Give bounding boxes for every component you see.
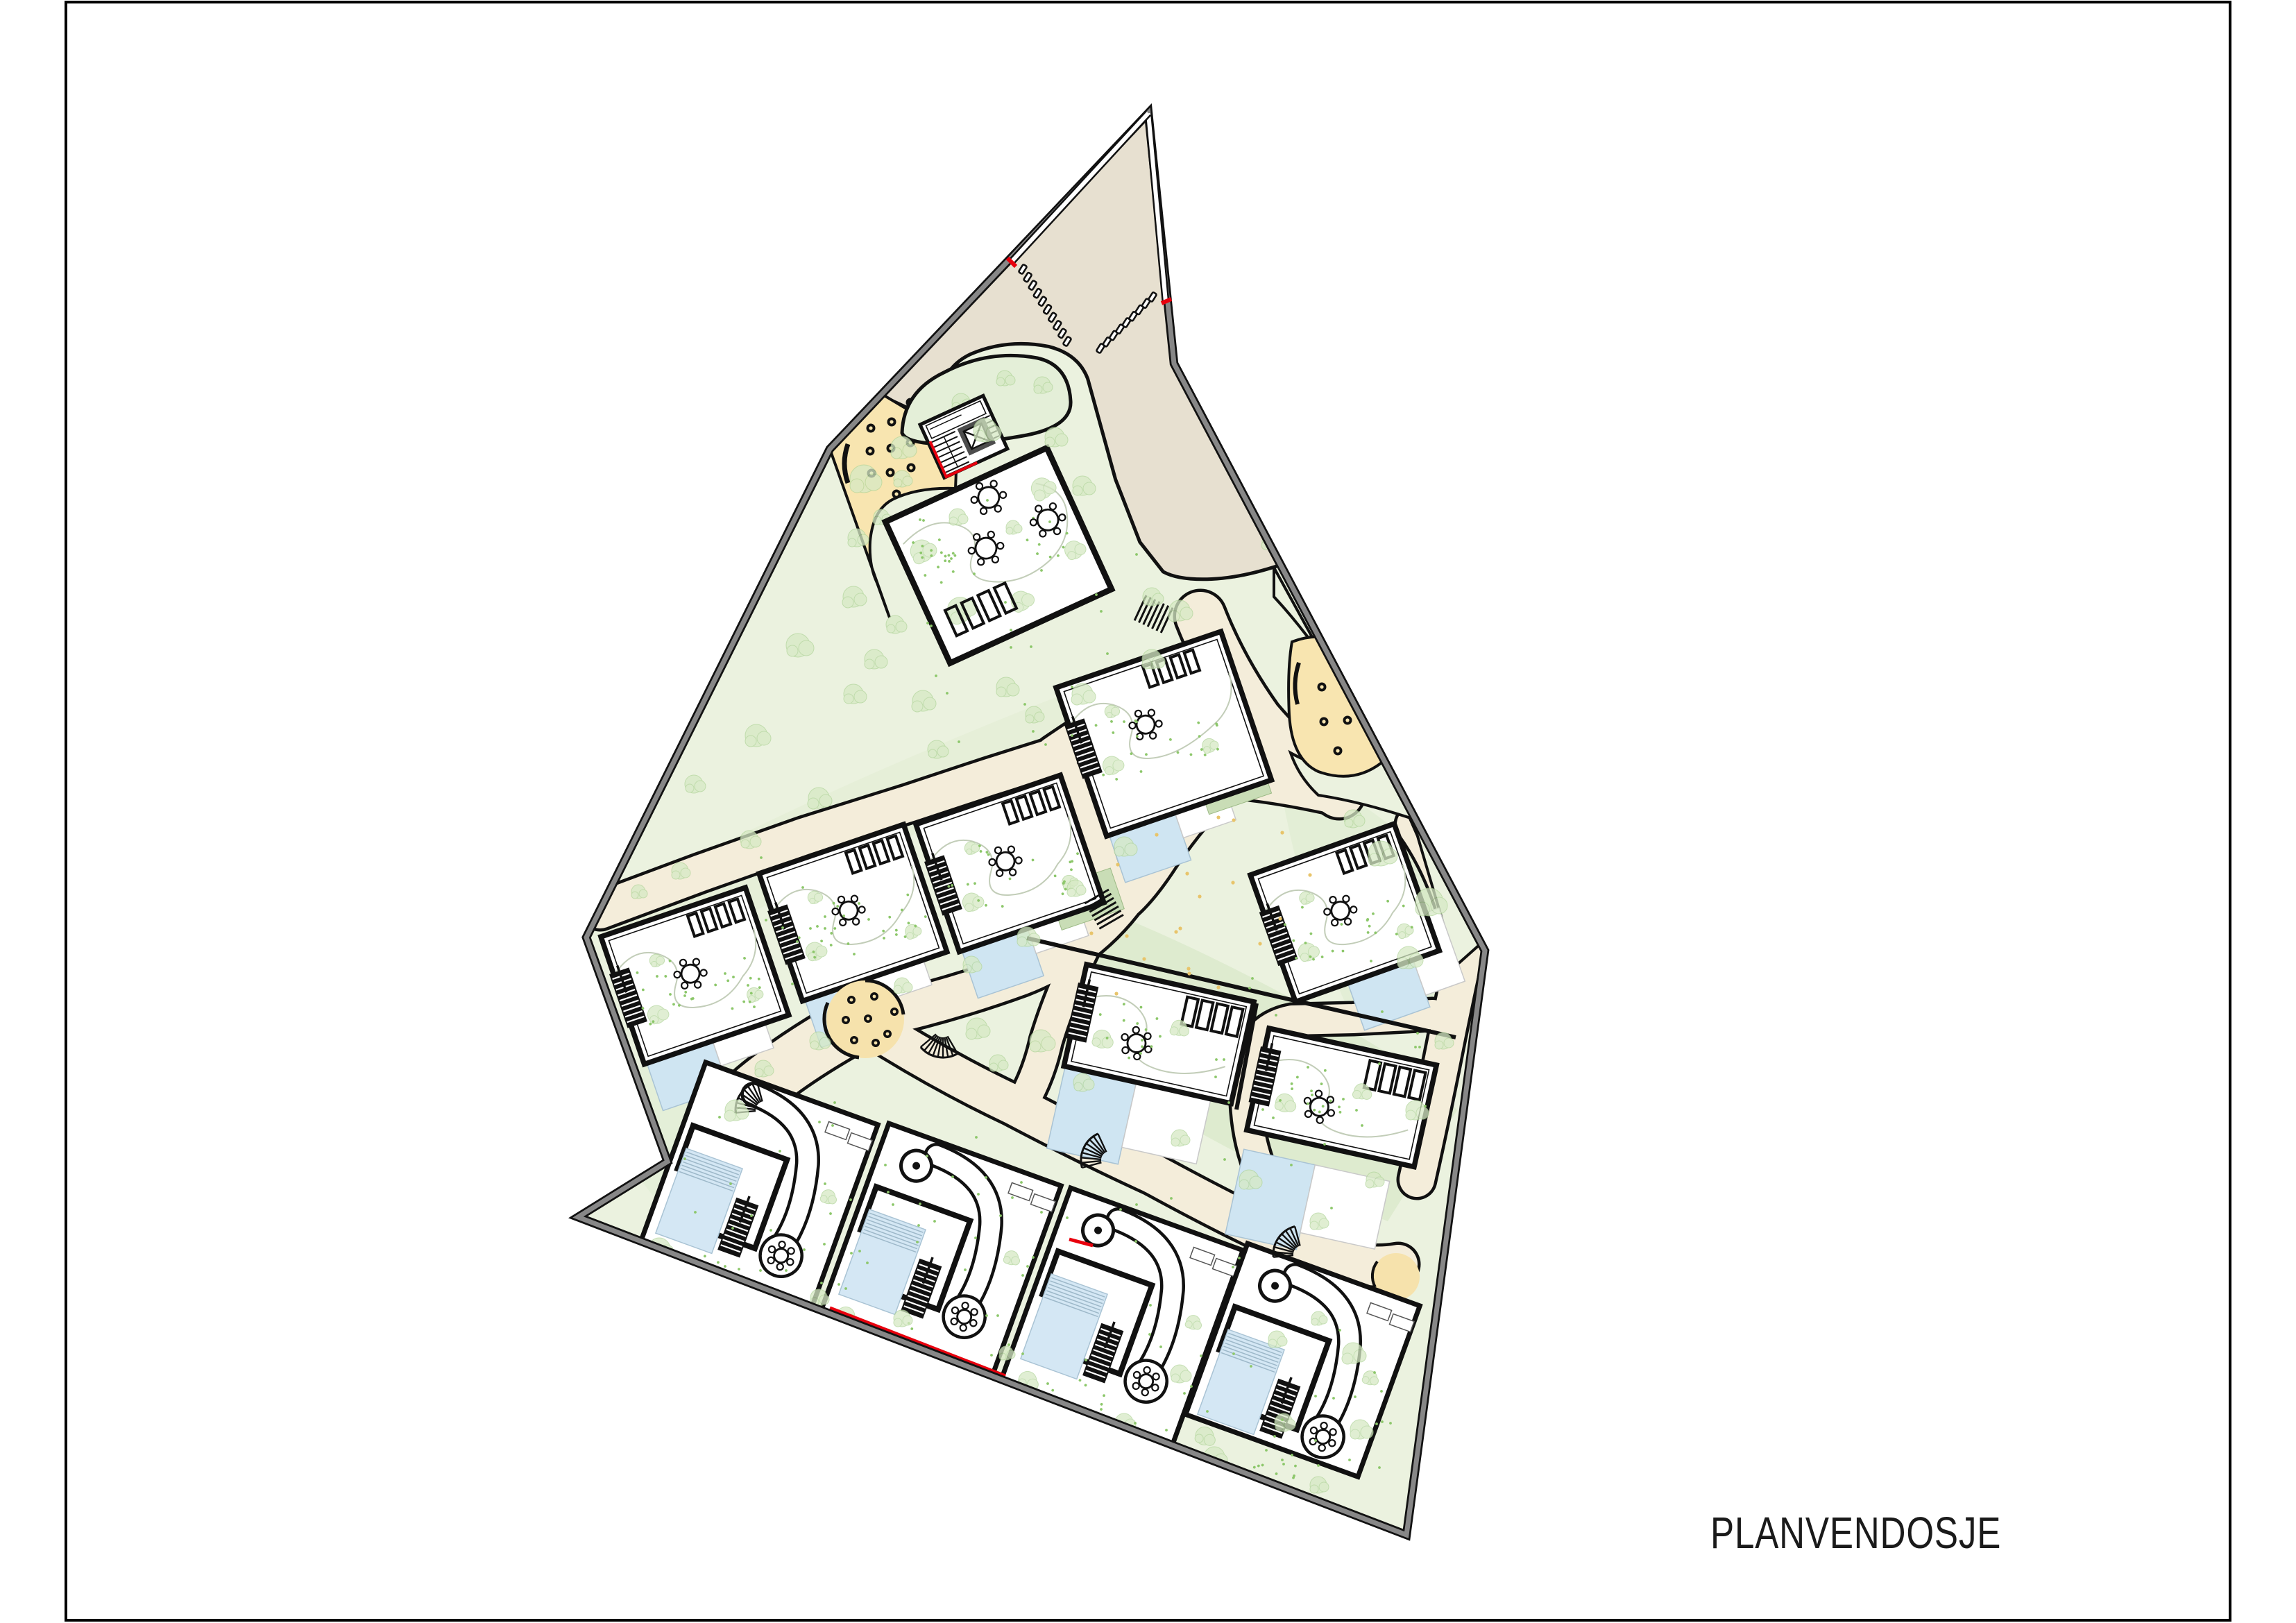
svg-text:PLANVENDOSJE: PLANVENDOSJE <box>1710 1509 2001 1558</box>
